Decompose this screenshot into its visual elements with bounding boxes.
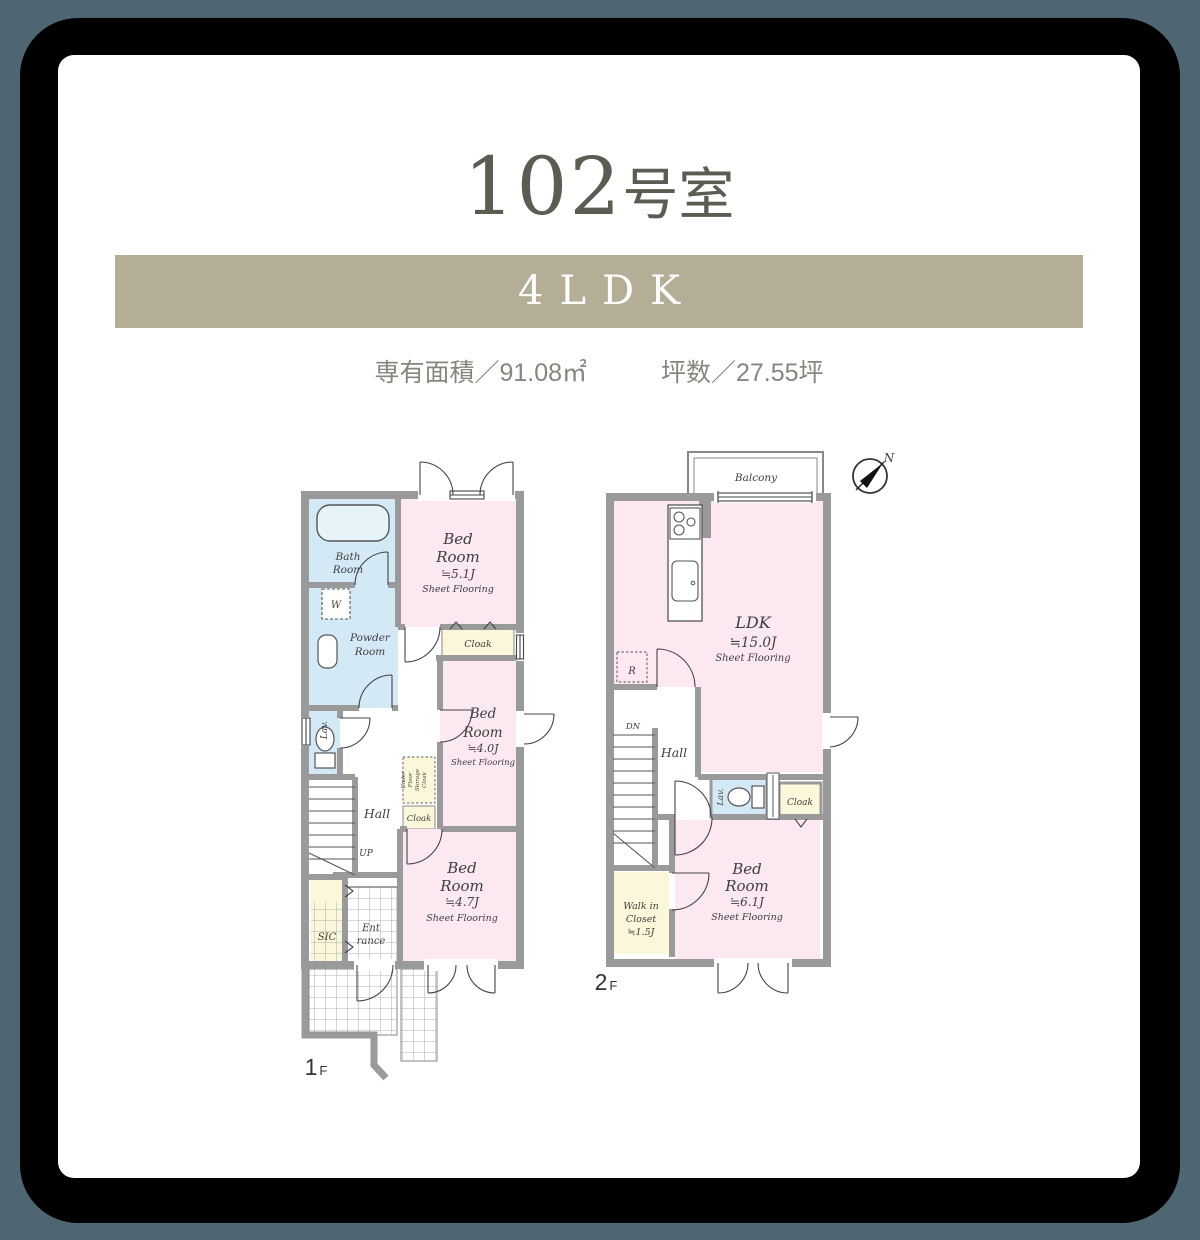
compass-north-label: N: [883, 451, 895, 465]
bedroom2-flooring: Sheet Flooring: [451, 758, 516, 768]
ldk-label: LDK: [734, 613, 771, 632]
floor1-plan: Bath Room W Powder Room Lav. Hall UP SIC…: [301, 462, 554, 1080]
bedroom2-size: ≒4.0J: [467, 742, 499, 755]
wic-size: ≒1.5J: [628, 927, 656, 938]
powder-room-label: Powder: [349, 632, 391, 644]
bedroom3-label: Bed: [446, 859, 477, 877]
powder-room-label2: Room: [354, 646, 386, 658]
wic-label: Walk in: [623, 901, 659, 912]
staircase-down: [613, 735, 655, 868]
stove-icon: [670, 508, 700, 539]
front-door-opening: [354, 959, 395, 971]
ldk-size: ≒15.0J: [730, 635, 778, 651]
porch-tiles-left: [309, 969, 397, 1035]
east-door-opening: [516, 711, 524, 747]
room-number: 102: [464, 140, 623, 233]
area-info-row: 専有面積／91.08㎡ 坪数／27.55坪: [58, 353, 1140, 389]
hall2-label: Hall: [660, 745, 687, 760]
lavatory1-label: Lav.: [320, 721, 330, 740]
bathroom-label: Bath: [335, 551, 361, 563]
entrance-label: Ent: [361, 923, 381, 934]
content-card: 102号室 4LDK 専有面積／91.08㎡ 坪数／27.55坪: [58, 55, 1140, 1178]
bedroom1-label: Bed: [442, 530, 473, 548]
entrance-label2: rance: [357, 936, 386, 947]
porch-tiles-right: [401, 969, 437, 1061]
bedroom3-south-opening: [424, 959, 498, 971]
bedroom3-flooring: Sheet Flooring: [426, 913, 498, 924]
bedroom1-flooring: Sheet Flooring: [422, 584, 494, 595]
floor2-label: 2F: [595, 969, 618, 995]
compass-icon: N: [853, 451, 895, 493]
plan-type-band: 4LDK: [115, 255, 1083, 328]
bedroom4-size: ≒6.1J: [730, 895, 765, 909]
kitchen-sink-icon: [672, 561, 698, 601]
stairs-down-label: DN: [625, 722, 641, 732]
washer-label: W: [331, 600, 342, 611]
stairs-up-label: UP: [359, 849, 374, 859]
floor2-plan: N Balcony LDK ≒15.0J Sheet Flooring R DN…: [595, 451, 895, 995]
room-number-suffix: 号室: [622, 163, 734, 228]
bathroom-label2: Room: [332, 564, 364, 576]
bedroom4-south-opening: [714, 958, 792, 969]
cloak1-label: Cloak: [464, 639, 492, 650]
ldk-flooring: Sheet Flooring: [715, 653, 790, 664]
bedroom3-size: ≒4.7J: [445, 895, 480, 909]
bedroom2-label2: Room: [462, 725, 502, 741]
kitchen-counter: [668, 505, 702, 621]
fridge-label: R: [627, 666, 636, 677]
bedroom2-label: Bed: [469, 706, 497, 722]
floor-plans: Bath Room W Powder Room Lav. Hall UP SIC…: [270, 425, 950, 1115]
powder-sink-icon: [318, 635, 337, 668]
bedroom4-flooring: Sheet Flooring: [711, 912, 783, 923]
ldk-east-door-opening: [822, 713, 832, 749]
bedroom3-label2: Room: [439, 877, 484, 895]
bedroom4-label2: Room: [724, 877, 769, 895]
page-title: 102号室: [58, 147, 1140, 227]
bedroom1-label2: Room: [435, 548, 480, 566]
balcony-label: Balcony: [734, 472, 778, 484]
bedroom1-size: ≒5.1J: [441, 567, 476, 581]
bedroom4-label: Bed: [731, 860, 762, 878]
wic-label2: Closet: [626, 914, 657, 925]
bathtub-icon: [317, 505, 389, 541]
cloak2-label: Cloak: [407, 814, 432, 824]
sic-label: SIC: [318, 932, 337, 943]
tsubo-label: 坪数／27.55坪: [661, 353, 824, 389]
hall1-label: Hall: [363, 806, 390, 821]
svg-text:Under: Under: [401, 771, 407, 789]
svg-text:Floor: Floor: [408, 772, 414, 788]
ldk-floor: [614, 501, 823, 772]
exclusive-area-label: 専有面積／91.08㎡: [374, 353, 587, 389]
svg-text:Cloak: Cloak: [422, 771, 428, 788]
floor1-label: 1F: [305, 1054, 328, 1080]
wic-floor: [614, 872, 669, 954]
plan-type-label: 4LDK: [115, 255, 1083, 328]
svg-text:Storage: Storage: [415, 768, 421, 791]
floor-plan-svg: Bath Room W Powder Room Lav. Hall UP SIC…: [270, 425, 950, 1115]
cloak3-label: Cloak: [787, 798, 813, 808]
staircase-up: [309, 787, 355, 875]
lavatory2-label: Lav.: [716, 788, 726, 806]
